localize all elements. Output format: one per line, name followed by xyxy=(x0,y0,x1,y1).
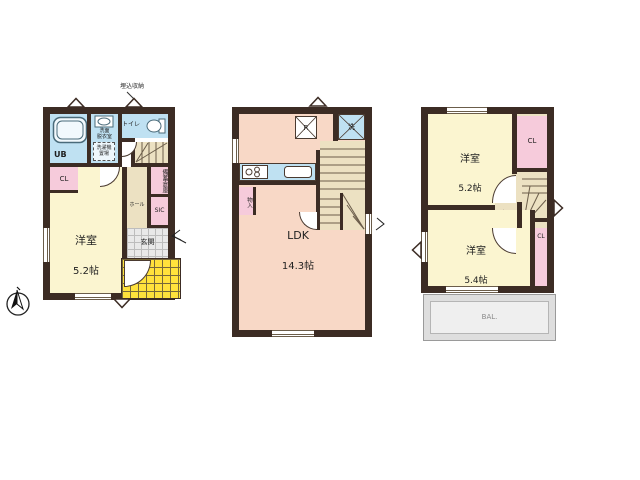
floor1-closet: CL xyxy=(50,167,78,190)
stairs-icon xyxy=(135,142,168,163)
bedroom-top-label: 洋室 5.2帖 xyxy=(444,136,496,213)
floor2-storage-label: 物入 xyxy=(242,191,252,213)
floor3-closet-top: CL xyxy=(517,116,547,168)
closet-top-label: CL xyxy=(517,137,547,145)
toilet-label: トイレ xyxy=(122,122,140,129)
stove-icon xyxy=(242,165,268,179)
floor2-plan: R 洗 物入 LDK 14.3帖 xyxy=(232,107,372,337)
floor2-storage: 物入 xyxy=(239,187,256,215)
wall xyxy=(535,218,547,222)
bathroom-label: UB xyxy=(54,150,67,159)
washbasin-icon xyxy=(94,115,114,128)
wall xyxy=(428,205,495,210)
bedroom-bottom-name: 洋室 xyxy=(450,246,502,258)
laundry-label: 洗 xyxy=(339,123,364,131)
closet-label: CL xyxy=(50,175,78,183)
floor1-entrance: 玄関 xyxy=(127,228,168,258)
floor1-stairs xyxy=(135,142,168,163)
compass-north-icon xyxy=(3,286,33,318)
window xyxy=(232,139,239,163)
ldk-size: 14.3帖 xyxy=(267,261,329,273)
floor1-sic: SIC xyxy=(151,197,168,225)
ldk-label: LDK 14.3帖 xyxy=(267,212,329,291)
wall xyxy=(333,114,338,142)
floor1-porch xyxy=(121,258,181,299)
fridge-space: R xyxy=(295,116,317,139)
window xyxy=(421,232,428,262)
fridge-label: R xyxy=(296,124,316,132)
wall xyxy=(517,168,547,172)
bedroom-name: 洋室 xyxy=(60,235,112,248)
floor3-closet-bottom: CL xyxy=(535,228,547,286)
entry-arrow-icon xyxy=(168,228,188,246)
vent-marker-icon xyxy=(66,97,86,108)
wall xyxy=(517,202,522,228)
entrance-door-arc xyxy=(124,260,151,287)
window xyxy=(446,286,498,293)
sic-label: SIC xyxy=(151,208,168,215)
hall-label: ホール xyxy=(127,203,147,209)
stock-storage-label: 備蓄倉庫 xyxy=(153,169,167,193)
wall xyxy=(512,114,517,174)
bathtub-icon xyxy=(52,116,88,144)
bedroom-size: 5.2帖 xyxy=(60,266,112,278)
bedroom-top-size: 5.2帖 xyxy=(444,184,496,194)
window xyxy=(43,228,50,262)
entrance-label: 玄関 xyxy=(127,238,168,246)
toilet-icon xyxy=(146,117,166,135)
floor1-bathroom: UB xyxy=(50,114,91,163)
door-opening xyxy=(365,214,372,234)
wall xyxy=(50,190,78,193)
balcony-label: BAL. xyxy=(431,313,548,321)
window xyxy=(75,293,111,300)
laundry-space: 洗 xyxy=(338,114,365,140)
bedroom-label: 洋室 5.2帖 xyxy=(60,217,112,296)
wall xyxy=(147,225,168,228)
vent-marker-icon xyxy=(553,198,564,218)
wall xyxy=(151,194,168,197)
vent-marker-icon xyxy=(308,96,328,107)
stairs-steps xyxy=(135,142,168,163)
entry-arrow-icon xyxy=(373,215,387,233)
window xyxy=(447,107,487,114)
floor1-stock-storage: 備蓄倉庫 xyxy=(151,167,168,194)
floor-plan-image: { "colors":{"wall":"#3c2c24","wet_blue":… xyxy=(0,0,640,480)
vent-marker-icon xyxy=(112,298,132,309)
built-in-storage-note: 埋込収納 xyxy=(112,84,152,91)
bedroom-top-name: 洋室 xyxy=(444,154,496,166)
floor1-hall: ホール xyxy=(127,167,147,228)
balcony: BAL. xyxy=(423,294,556,341)
washer-space-label: 洗濯機 置場 xyxy=(94,146,114,158)
floor1-toilet: トイレ xyxy=(118,114,168,138)
floor3-plan: 洋室 5.2帖 CL ホール 洋室 5.4帖 CL xyxy=(421,107,554,293)
window xyxy=(272,330,314,337)
kitchen-sink-icon xyxy=(284,166,312,178)
kitchen-counter xyxy=(239,163,316,181)
washer-space-box: 洗濯機 置場 xyxy=(93,142,115,161)
wall xyxy=(122,167,127,260)
wall xyxy=(239,181,316,185)
washroom-label: 洗面 脱衣室 xyxy=(91,129,118,141)
vent-marker-icon xyxy=(411,240,422,260)
balcony-inner: BAL. xyxy=(430,301,549,334)
vent-marker-icon xyxy=(124,97,144,108)
closet-bottom-label: CL xyxy=(535,234,547,241)
floor1-washroom: 洗面 脱衣室 洗濯機 置場 xyxy=(91,114,118,163)
wall xyxy=(87,114,91,163)
ldk-name: LDK xyxy=(267,230,329,243)
